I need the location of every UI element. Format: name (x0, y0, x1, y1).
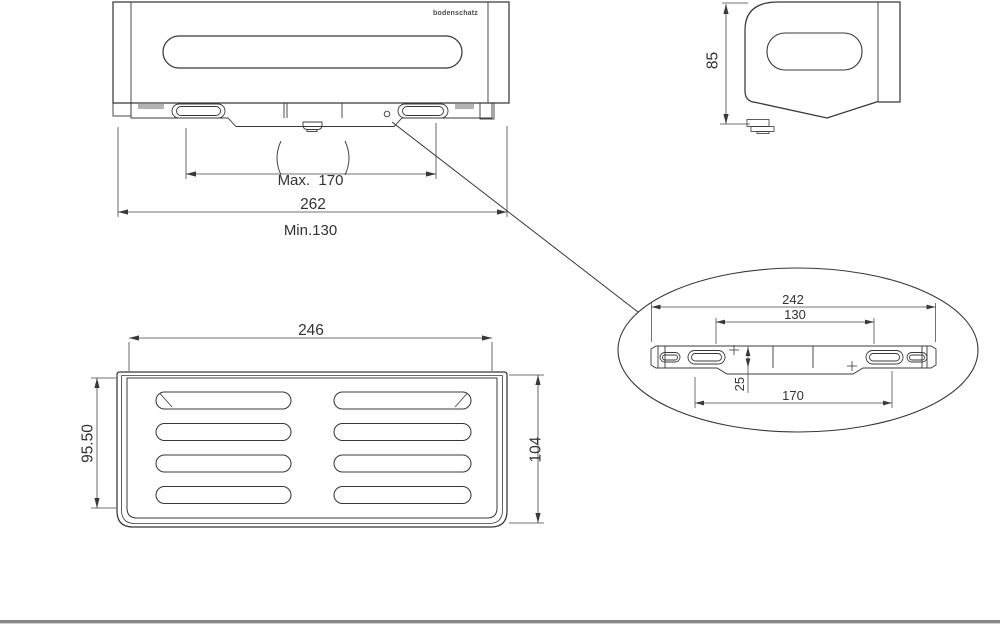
side-slot (767, 33, 862, 70)
keyhole-right (907, 353, 927, 363)
drain-knob (303, 122, 322, 130)
top-view (117, 372, 507, 527)
dim-hole-spacing-min: 130 (765, 308, 825, 322)
dim-hole-spacing-max: 170 (763, 389, 823, 403)
detail-slot-left (688, 351, 725, 365)
dim-overall-height: 85 (704, 46, 721, 76)
side-view (745, 2, 900, 134)
top-dimensions (91, 338, 544, 523)
technical-drawing-canvas: bodenschatz Max. 170 Min.130 262 85 246 … (0, 0, 1000, 624)
dim-opening-width: 246 (281, 322, 341, 339)
dim-inner-depth: 95.50 (79, 420, 96, 468)
side-body-outline (745, 2, 878, 118)
top-inner-floor (127, 378, 497, 518)
drain-slots (156, 392, 471, 504)
keyhole-left (660, 353, 680, 363)
detail-bracket (651, 345, 936, 374)
brand-logo: bodenschatz (398, 10, 478, 18)
dim-bracket-height: 25 (733, 369, 747, 399)
bracket-hole (384, 111, 390, 117)
dim-overall-depth: 104 (527, 430, 544, 470)
drawing-linework (0, 0, 1000, 624)
hatch-left (138, 104, 164, 109)
front-slot (163, 36, 462, 68)
top-dim-arrows (94, 335, 540, 523)
mount-max-label: Max. 170 (273, 173, 348, 190)
window-bottom-bar (0, 620, 1000, 623)
detail-leader-line (392, 122, 638, 312)
mount-min-label: Min.130 (273, 223, 348, 240)
dim-bracket-length: 242 (763, 293, 823, 307)
front-mounting-bracket (113, 103, 494, 132)
hatch-right (455, 104, 474, 109)
side-foot (747, 120, 769, 127)
dim-overall-width: 262 (283, 196, 343, 213)
detail-slot-right (866, 351, 903, 365)
